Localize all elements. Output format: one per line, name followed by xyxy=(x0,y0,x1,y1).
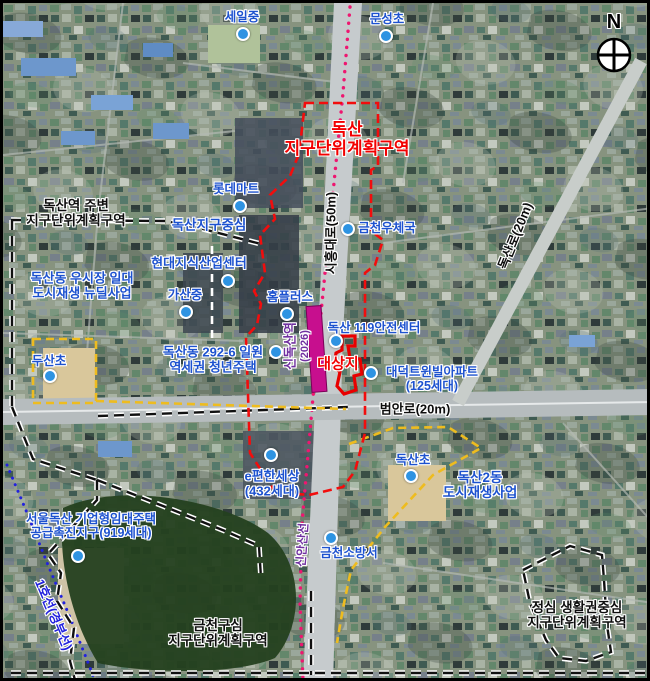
poi-label-home-plus: 홈플러스 xyxy=(267,290,313,304)
station-label-sin-doksan: 신독산역 xyxy=(284,322,299,370)
seouldoksan-line1: 서울독산 기업형임대주택 xyxy=(26,512,156,526)
daedeok-apt-label: 대덕트윈빌아파트 (125세대) xyxy=(386,365,478,393)
poi-label-doksan-elem: 독산초 xyxy=(396,453,431,467)
geumcheon-core-line1: 금천구심 xyxy=(168,618,267,633)
poi-label-seil-middle: 세일중 xyxy=(225,10,260,24)
usijang-renewal-line2: 도시재생 뉴딜사업 xyxy=(31,286,134,301)
poi-dot-fire-station xyxy=(324,531,338,545)
daedeok-apt-line1: 대덕트윈빌아파트 xyxy=(386,365,478,379)
satellite-district-map: N 세일중 문성초 독산 지구단위계획구역 독산역 주변 지구단위계획구역 롯데… xyxy=(0,0,650,681)
satellite-background xyxy=(3,3,650,681)
poi-dot-gasan-middle xyxy=(179,305,193,319)
doksan-district-title-line2: 지구단위계획구역 xyxy=(284,139,409,158)
geumcheon-core-label: 금천구심 지구단위계획구역 xyxy=(168,618,267,648)
doksan-district-title: 독산 지구단위계획구역 xyxy=(284,120,409,158)
youth-housing-line2: 역세권 청년주택 xyxy=(163,360,263,375)
daedeok-apt-line2: (125세대) xyxy=(386,379,478,393)
usijang-renewal-line1: 독산동 우시장 일대 xyxy=(31,271,134,286)
station-year-label: (2026) xyxy=(299,330,311,362)
road-label-beoman-ro: 범안로(20m) xyxy=(380,403,451,418)
poi-dot-seil-middle xyxy=(236,27,250,41)
vicinity-district-line1: 독산역 주변 xyxy=(26,198,125,213)
poi-label-geumcheon-post: 금천우체국 xyxy=(358,221,416,235)
district-center-label: 독산지구중심 xyxy=(172,217,247,232)
poi-dot-home-plus xyxy=(280,307,294,321)
usijang-renewal-label: 독산동 우시장 일대 도시재생 뉴딜사업 xyxy=(31,271,134,300)
seouldoksan-line2: 공급촉진지구(919세대) xyxy=(26,526,156,540)
poi-dot-epyeonhan xyxy=(264,448,278,462)
seil-school-yard xyxy=(208,25,260,63)
road-label-siheung-daero: 시흥대로(50m) xyxy=(325,192,340,275)
poi-label-dusan-elem: 두산초 xyxy=(32,354,67,368)
epyeonhan-line2: (432세대) xyxy=(244,484,299,499)
poi-label-munseong-elem: 문성초 xyxy=(370,12,405,26)
poi-dot-geumcheon-post xyxy=(341,222,355,236)
north-compass-icon xyxy=(598,39,630,71)
youth-housing-label: 독산동 292-6 일원 역세권 청년주택 xyxy=(163,345,263,374)
poi-label-lotte-mart: 롯데마트 xyxy=(213,182,259,196)
poi-dot-youth-housing xyxy=(269,345,283,359)
target-site-label: 대상지 xyxy=(317,357,358,374)
jeongsim-district-label: 정심 생활권중심 지구단위계획구역 xyxy=(527,600,626,630)
jeongsim-line1: 정심 생활권중심 xyxy=(527,600,626,615)
poi-dot-hyundai-center xyxy=(221,274,235,288)
epyeonhan-label: e편한세상 (432세대) xyxy=(244,469,299,498)
doksan2dong-line2: 도시재생사업 xyxy=(443,485,518,500)
seouldoksan-label: 서울독산 기업형임대주택 공급촉진지구(919세대) xyxy=(26,512,156,540)
poi-dot-daedeok-apt xyxy=(364,366,378,380)
compass-n-label: N xyxy=(607,11,621,33)
geumcheon-core-line2: 지구단위계획구역 xyxy=(168,633,267,648)
map-canvas xyxy=(3,3,650,681)
poi-dot-seouldoksan xyxy=(71,549,85,563)
poi-dot-lotte-mart xyxy=(233,199,247,213)
poi-label-safety-119: 독산 119안전센터 xyxy=(328,321,421,335)
epyeonhan-line1: e편한세상 xyxy=(244,469,299,484)
poi-label-hyundai-center: 현대지식산업센터 xyxy=(151,257,247,272)
poi-label-gasan-middle: 가산중 xyxy=(168,288,203,302)
youth-housing-line1: 독산동 292-6 일원 xyxy=(163,345,263,360)
poi-dot-dusan-elem xyxy=(43,369,57,383)
doksan2dong-line1: 독산2동 xyxy=(443,470,518,485)
doksan-district-title-line1: 독산 xyxy=(284,120,409,139)
poi-dot-doksan-elem xyxy=(404,469,418,483)
poi-dot-munseong-elem xyxy=(379,29,393,43)
jeongsim-line2: 지구단위계획구역 xyxy=(527,615,626,630)
vicinity-district-label: 독산역 주변 지구단위계획구역 xyxy=(26,198,125,228)
doksan2dong-renewal-label: 독산2동 도시재생사업 xyxy=(443,470,518,500)
poi-label-fire-station: 금천소방서 xyxy=(320,546,378,560)
vicinity-district-line2: 지구단위계획구역 xyxy=(26,213,125,228)
poi-dot-safety-119 xyxy=(329,334,343,348)
